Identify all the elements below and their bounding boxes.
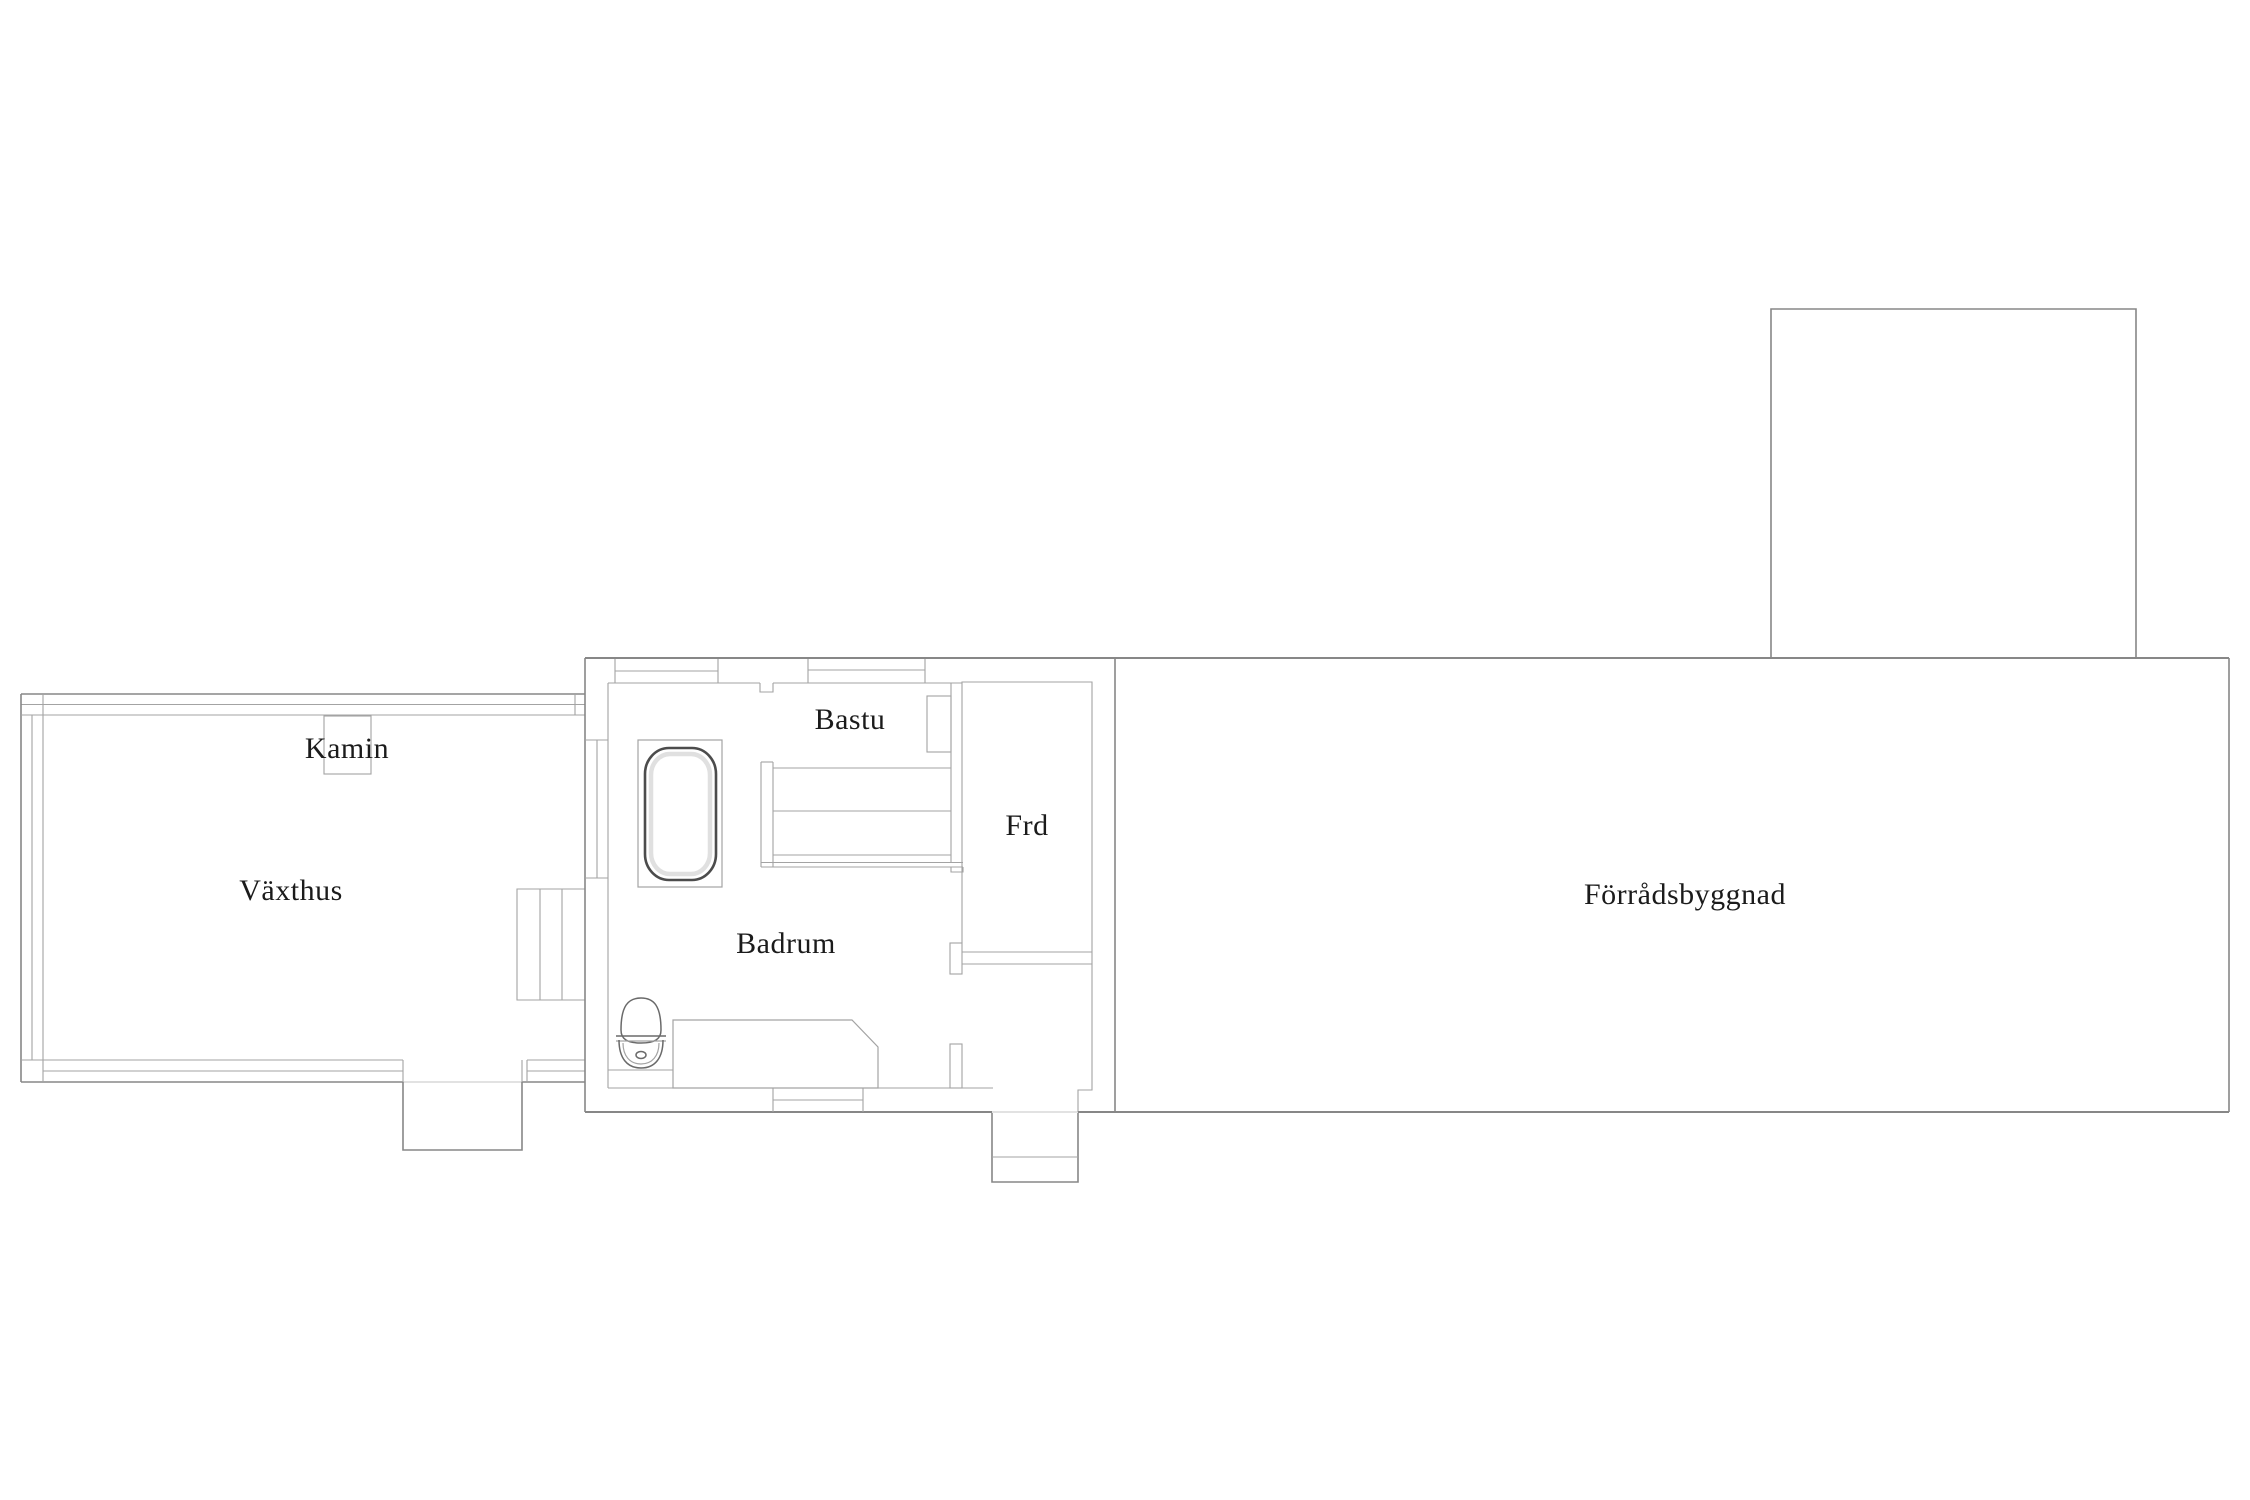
frd-room	[950, 682, 1092, 1112]
sauna-benches	[773, 768, 951, 855]
label-badrum: Badrum	[736, 927, 836, 960]
floor-plan: Kamin Växthus Bastu Frd Badrum Förrådsby…	[0, 0, 2250, 1500]
label-forradsbyggnad: Förrådsbyggnad	[1584, 878, 1786, 911]
sauna-heater	[927, 696, 951, 752]
stairs	[517, 889, 585, 1000]
storage-extension	[1771, 309, 2136, 659]
entry-steps	[992, 1113, 1078, 1182]
label-bastu: Bastu	[815, 703, 886, 736]
toilet	[616, 998, 666, 1068]
counter	[673, 1020, 878, 1088]
label-frd: Frd	[1005, 809, 1048, 842]
room-labels: Kamin Växthus Bastu Frd Badrum Förrådsby…	[239, 703, 1786, 960]
storage-building-walls	[1078, 309, 2229, 1112]
bathtub	[638, 740, 722, 887]
label-vaxthus: Växthus	[239, 874, 343, 907]
greenhouse-step	[403, 1082, 522, 1150]
floor-plan-canvas: Kamin Växthus Bastu Frd Badrum Förrådsby…	[0, 0, 2250, 1500]
label-kamin: Kamin	[305, 732, 389, 765]
